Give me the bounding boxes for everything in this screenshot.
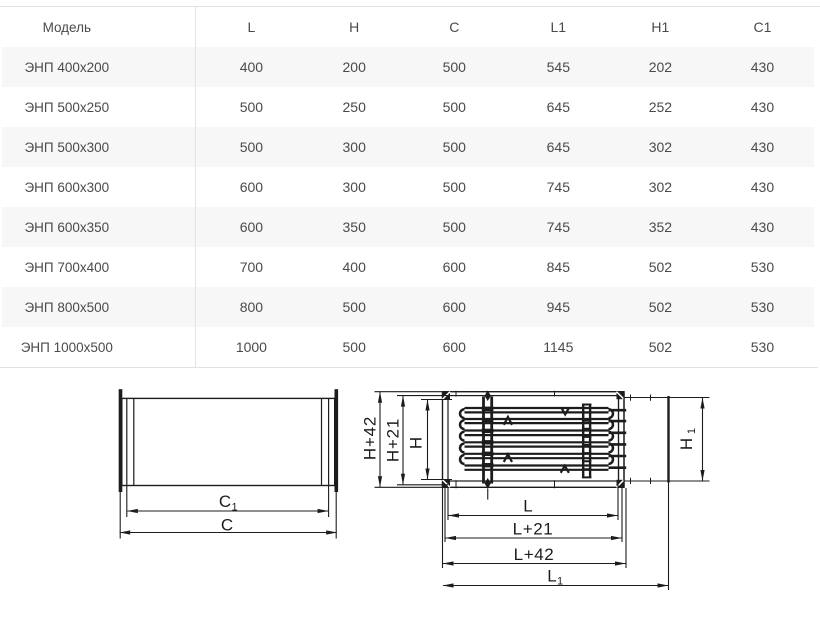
svg-text:L+42: L+42 [514, 545, 555, 564]
svg-text:H: H [677, 438, 696, 450]
svg-text:C: C [219, 492, 231, 511]
svg-text:1: 1 [686, 428, 698, 434]
svg-text:1: 1 [557, 576, 563, 588]
svg-text:H+42: H+42 [361, 416, 380, 460]
svg-text:H+21: H+21 [384, 418, 403, 462]
svg-text:L+21: L+21 [513, 520, 554, 539]
svg-text:L: L [547, 567, 556, 586]
svg-text:C: C [221, 516, 233, 535]
svg-text:H: H [407, 437, 426, 449]
svg-text:L: L [523, 497, 532, 516]
svg-text:1: 1 [231, 502, 237, 514]
